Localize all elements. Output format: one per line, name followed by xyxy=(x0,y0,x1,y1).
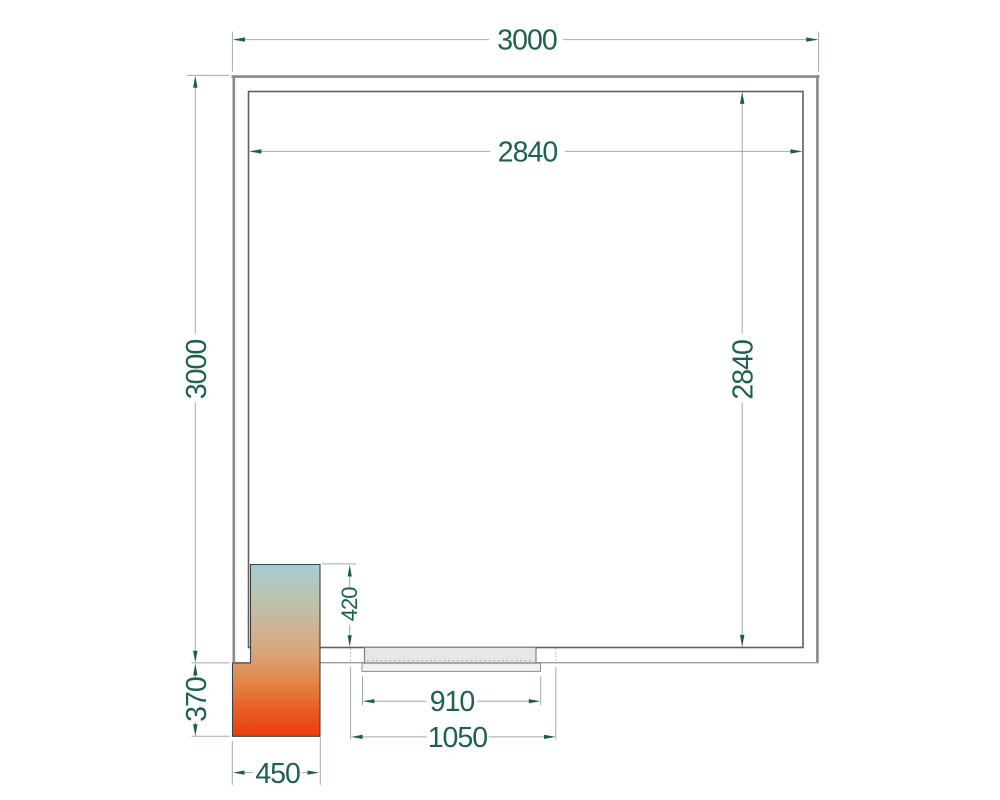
svg-text:1050: 1050 xyxy=(428,722,488,754)
svg-text:910: 910 xyxy=(430,686,475,718)
svg-text:370: 370 xyxy=(181,677,213,722)
svg-text:450: 450 xyxy=(255,758,300,790)
svg-text:2840: 2840 xyxy=(727,340,759,400)
svg-text:2840: 2840 xyxy=(498,136,558,168)
svg-text:3000: 3000 xyxy=(181,340,213,400)
svg-text:420: 420 xyxy=(337,587,362,621)
svg-text:3000: 3000 xyxy=(497,24,557,56)
